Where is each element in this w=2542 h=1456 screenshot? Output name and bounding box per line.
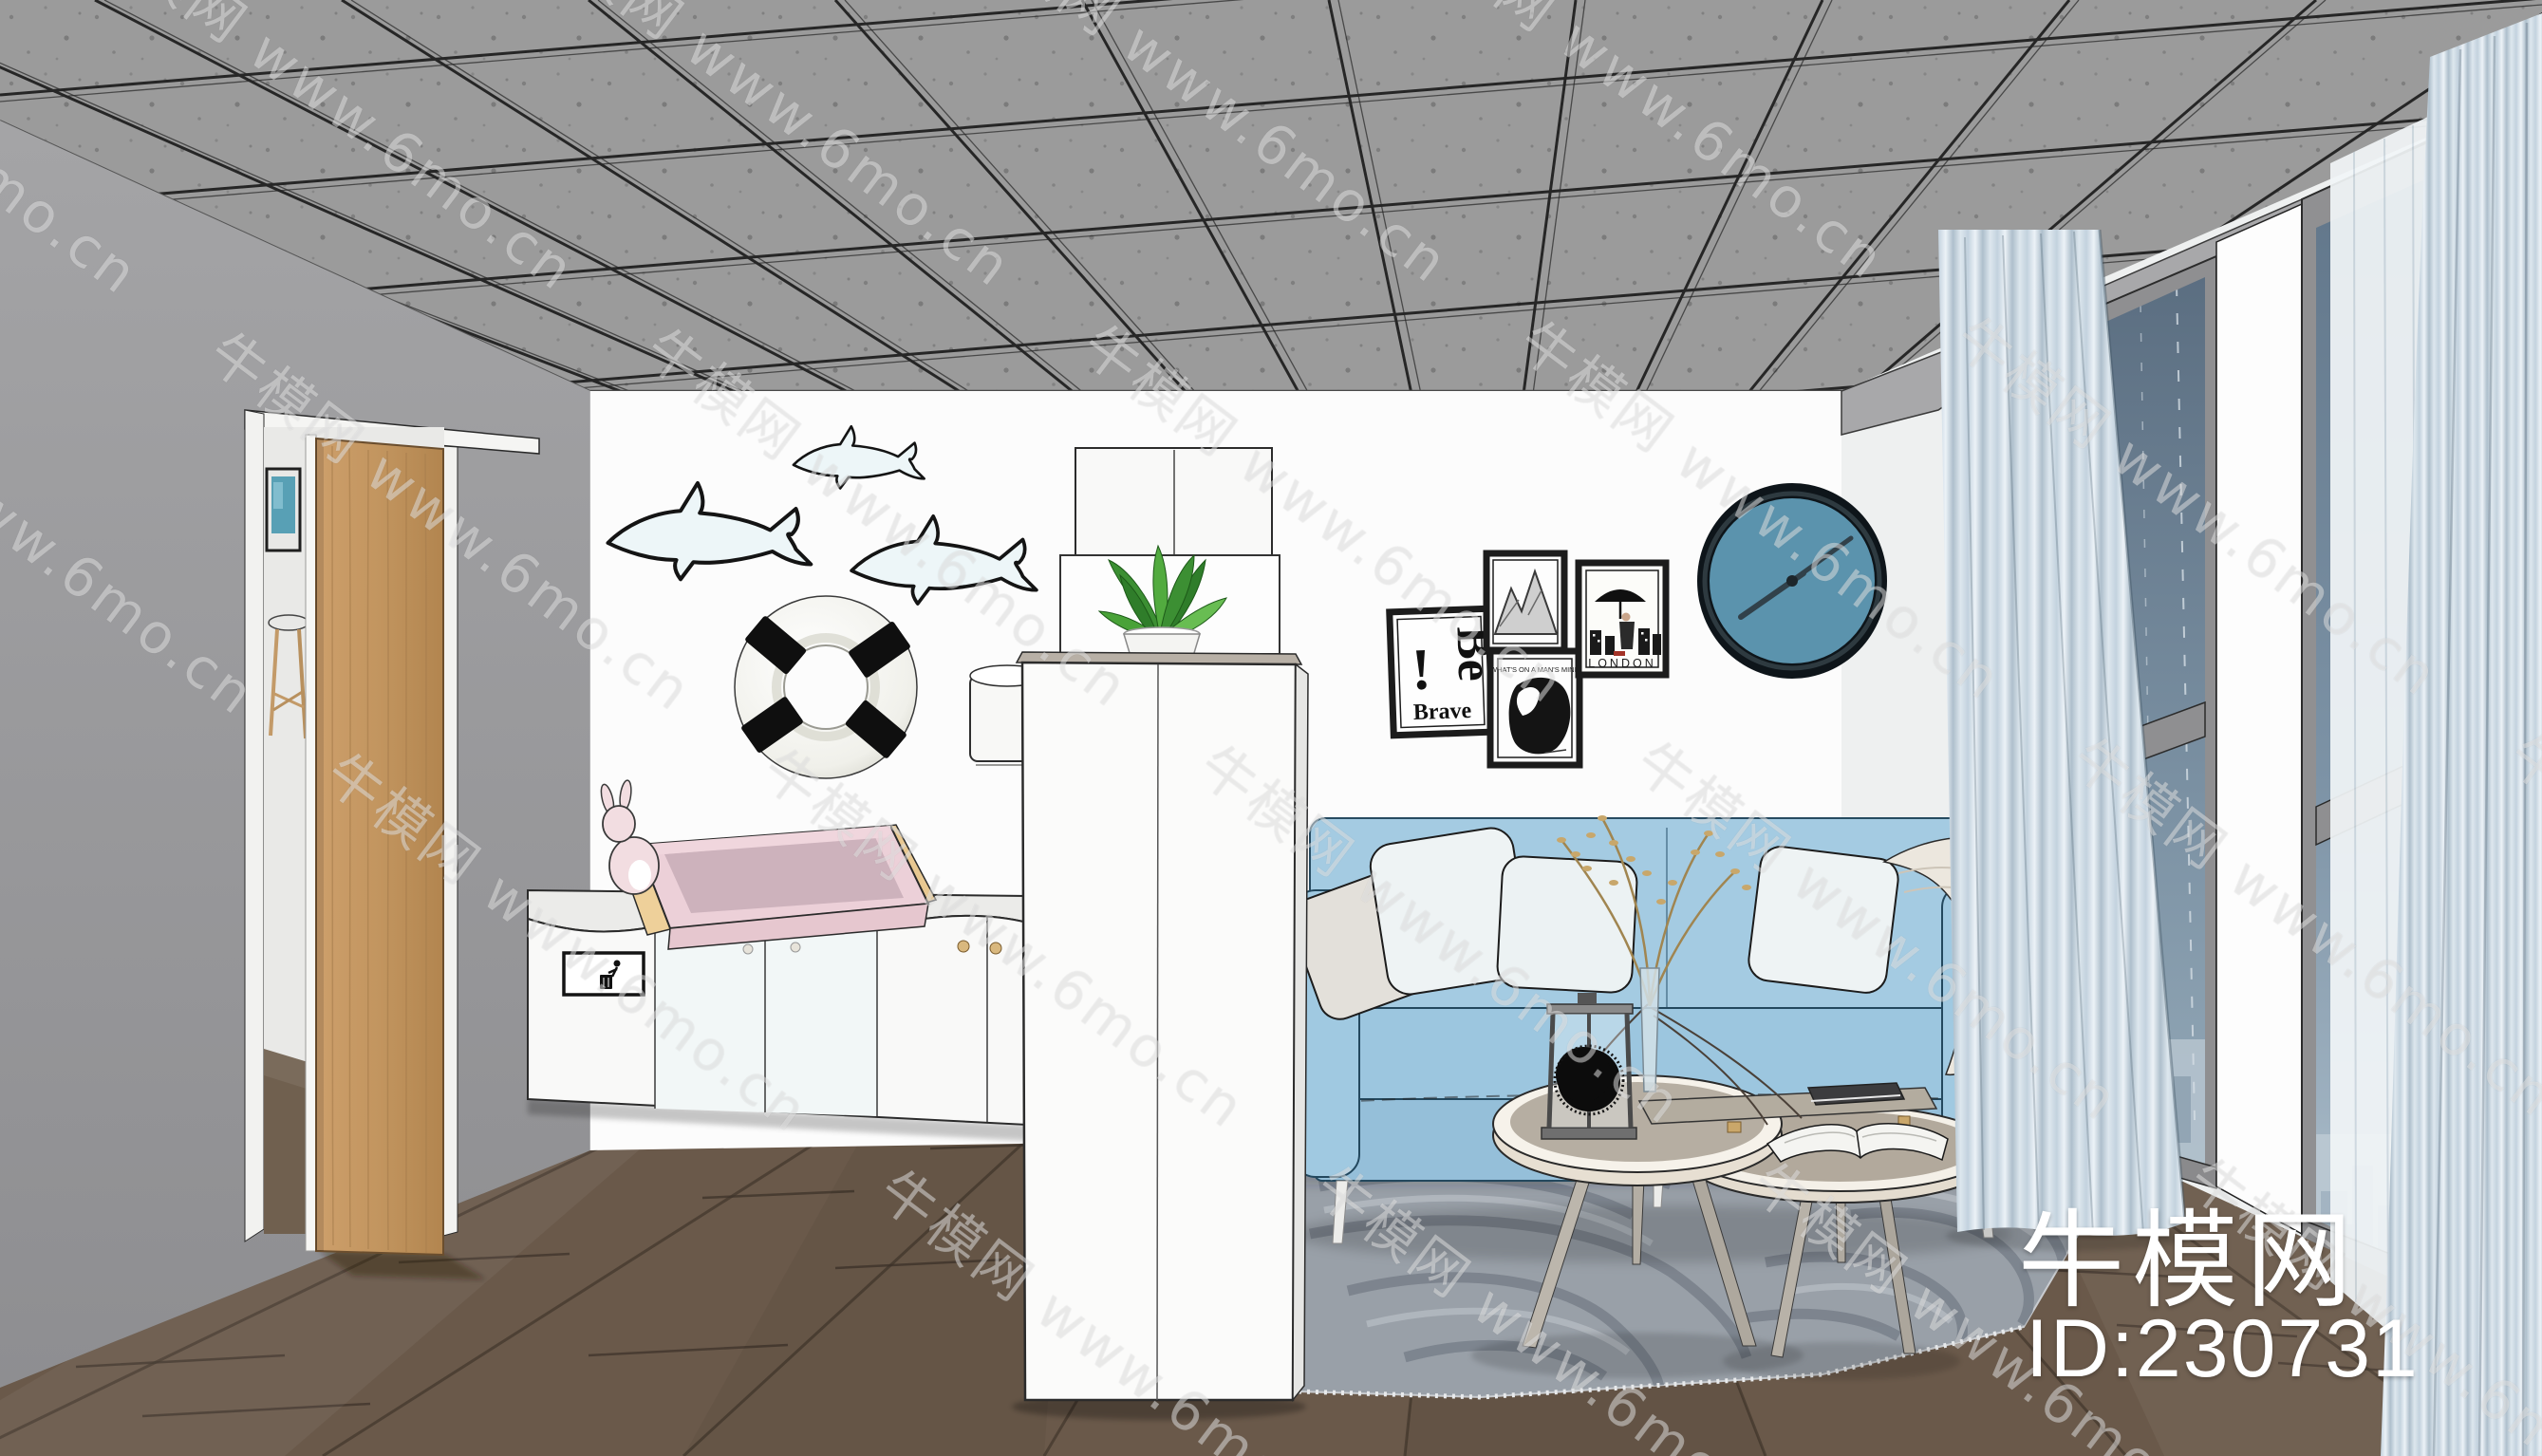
trash-sign bbox=[564, 953, 644, 995]
door-leaf bbox=[306, 435, 443, 1255]
svg-text:LONDON: LONDON bbox=[1588, 657, 1655, 670]
inner-picture bbox=[267, 469, 300, 551]
poster-mountain bbox=[1486, 553, 1564, 650]
svg-text:!: ! bbox=[1411, 637, 1432, 702]
window-pillar bbox=[2216, 204, 2302, 1234]
room-art: ! Be Brave WHAT'S ON A MAN'S MIND bbox=[0, 0, 2542, 1456]
wardrobe-doors bbox=[1022, 663, 1296, 1400]
poster-mans-mind: WHAT'S ON A MAN'S MIND bbox=[1490, 651, 1580, 765]
wall-clock bbox=[1697, 483, 1887, 679]
poster-london: LONDON bbox=[1579, 563, 1666, 675]
svg-text:WHAT'S ON A MAN'S MIND: WHAT'S ON A MAN'S MIND bbox=[1490, 665, 1580, 674]
lantern bbox=[1542, 993, 1636, 1139]
room-render: ! Be Brave WHAT'S ON A MAN'S MIND bbox=[0, 0, 2542, 1456]
svg-text:Brave: Brave bbox=[1412, 699, 1472, 725]
